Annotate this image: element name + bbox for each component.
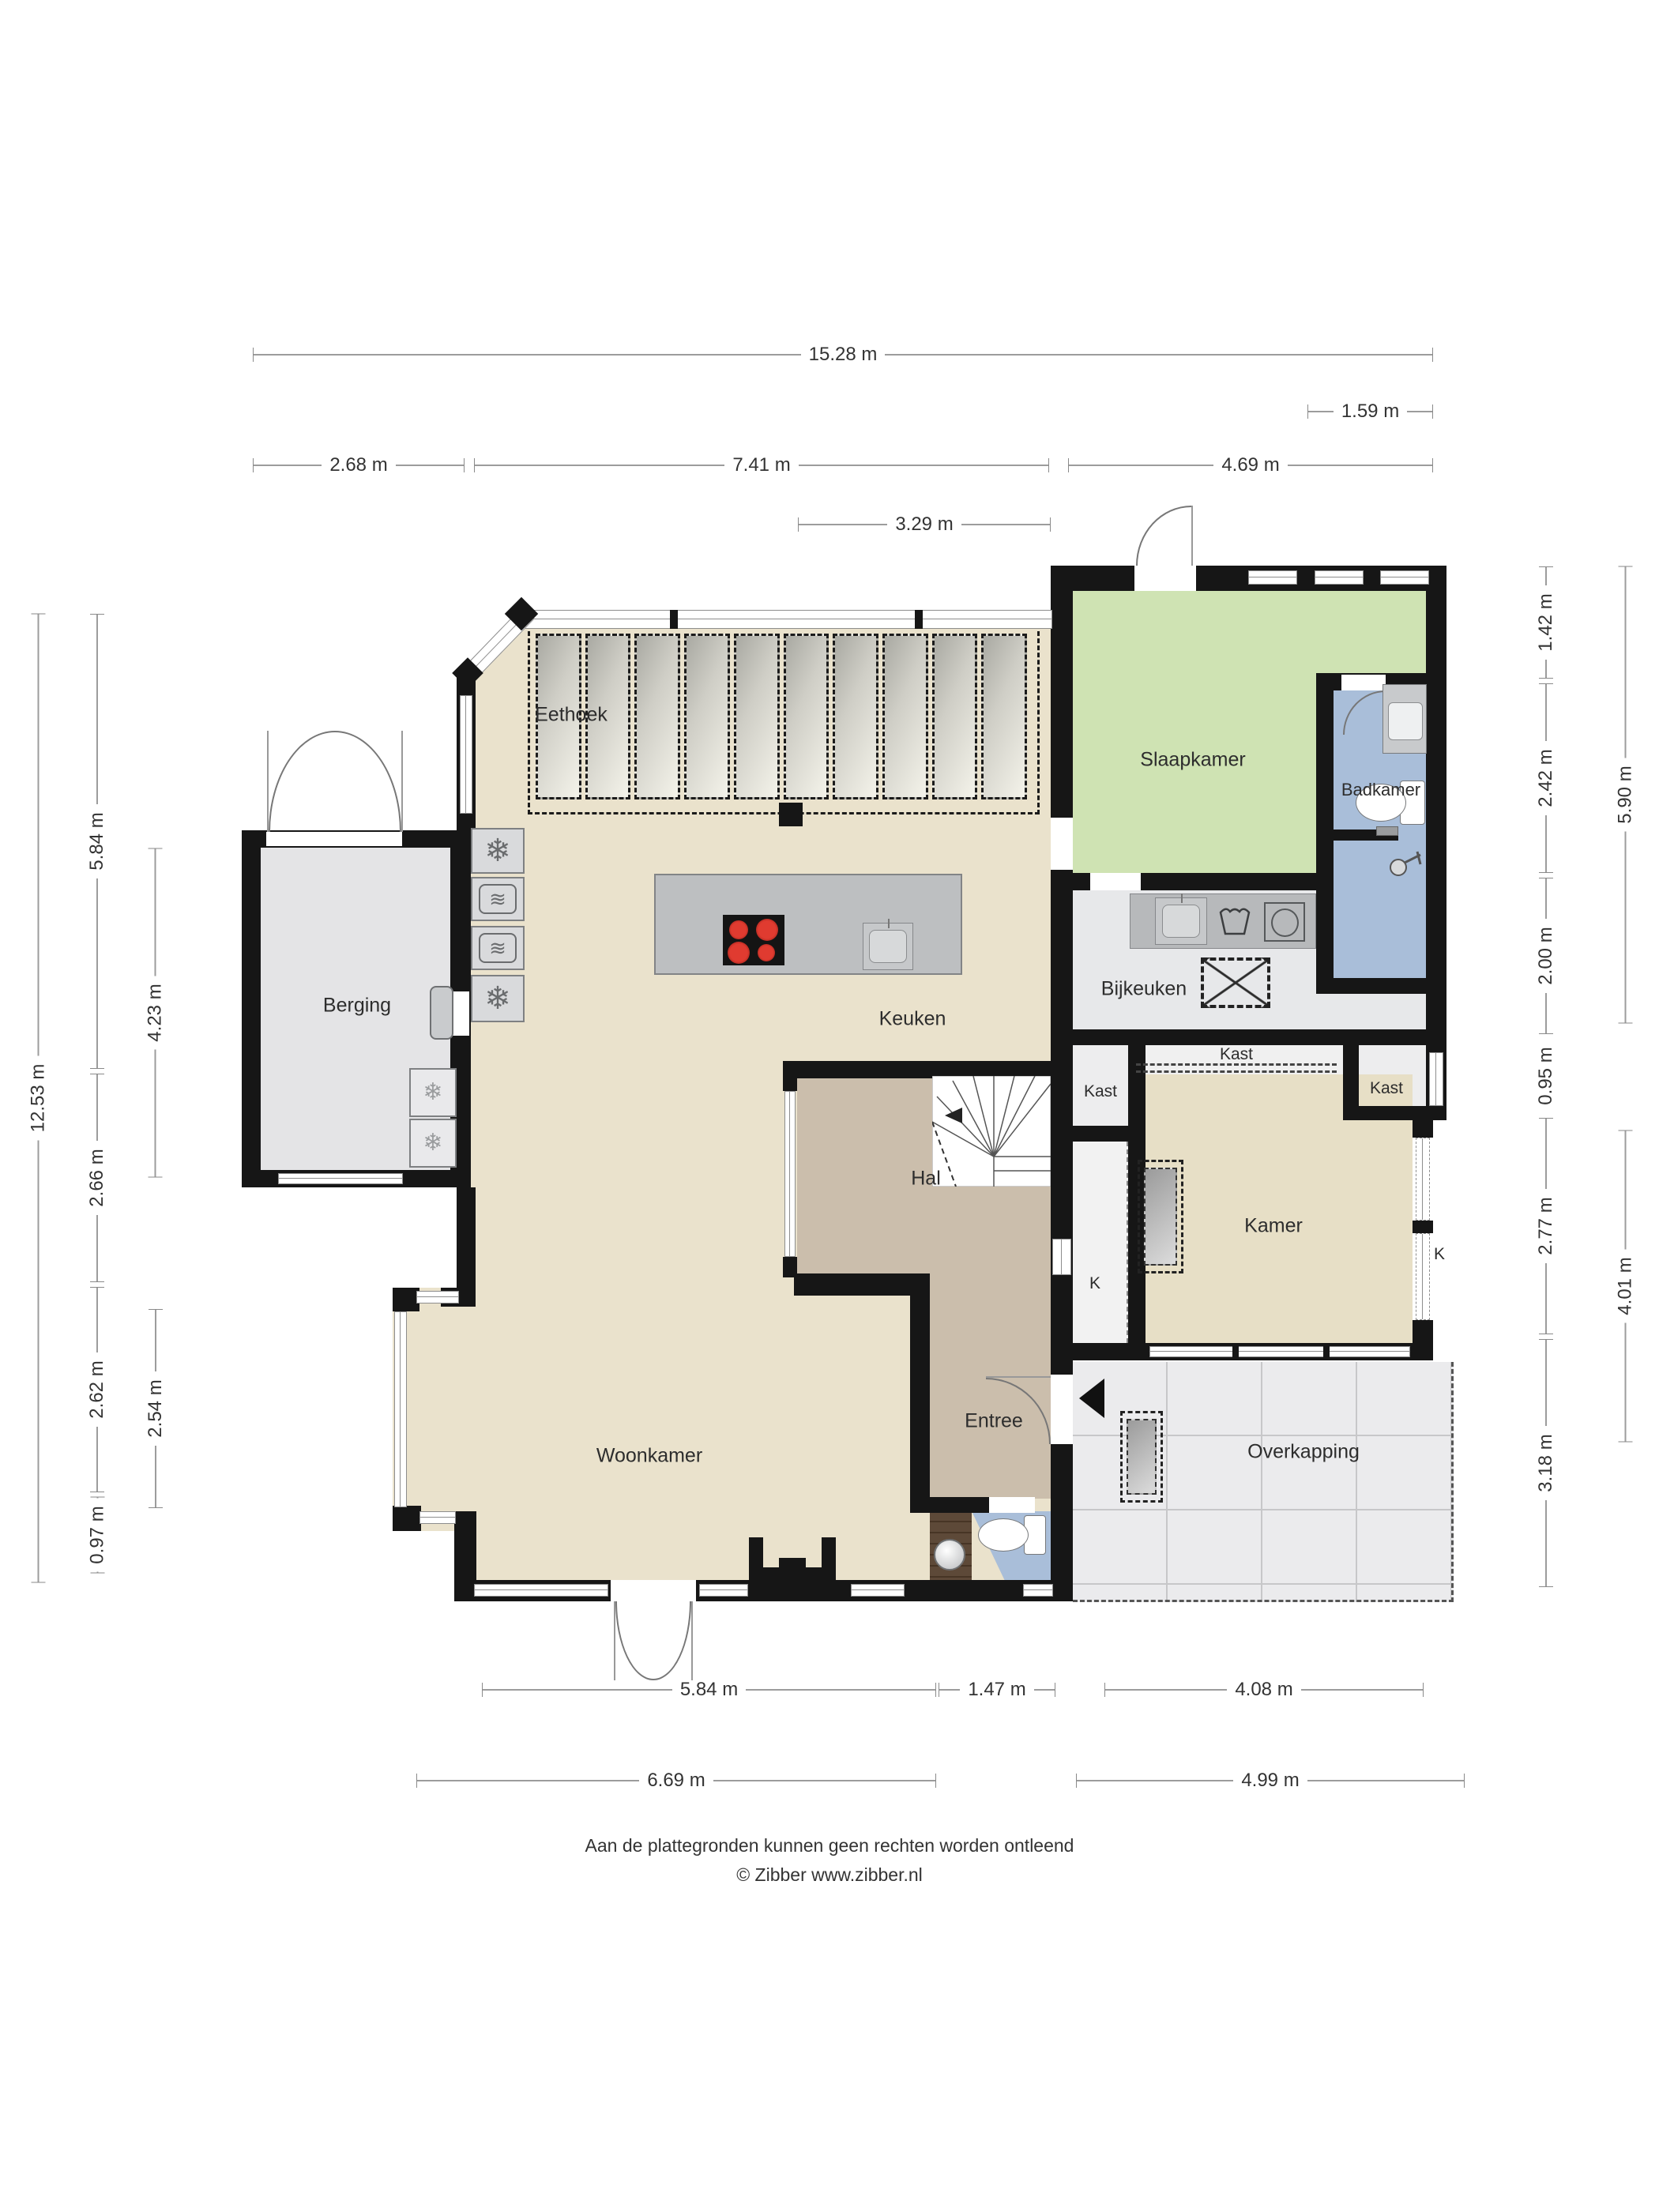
dim-label: 0.95 m (1537, 1039, 1556, 1112)
glass-roof-panel (684, 634, 730, 799)
dim-label: 2.66 m (88, 1141, 107, 1214)
window (851, 1584, 905, 1597)
shower-knob (1376, 826, 1398, 836)
glass-roof-panel (833, 634, 878, 799)
dim-label: 15.28 m (801, 345, 886, 364)
dim-label: 2.62 m (88, 1352, 107, 1426)
laundry-basket-icon (1217, 904, 1253, 939)
dim-label: 5.84 m (88, 804, 107, 878)
window (1149, 1346, 1410, 1357)
door-arc (615, 1601, 653, 1680)
door-opening (1090, 873, 1141, 890)
room-label-slaapkamer: Slaapkamer (1140, 749, 1245, 772)
snowflake-icon: ❄ (484, 835, 511, 867)
washing-machine-icon (1264, 902, 1305, 942)
wall (1323, 1343, 1330, 1360)
dim-right-wing-total: 5.90 m (1619, 566, 1633, 1024)
wall (783, 1061, 797, 1091)
door-arc (653, 1601, 691, 1680)
wall-badkamer-bottom (1316, 978, 1428, 994)
wall-bay-corner (393, 1288, 419, 1311)
door-opening (1341, 675, 1386, 690)
door-arc (335, 731, 401, 832)
dim-label: 2.00 m (1537, 919, 1556, 992)
window-dashed (1416, 1233, 1430, 1320)
room-label-kast-left: Kast (1084, 1082, 1117, 1101)
dim-top-keuken: 7.41 m (474, 458, 1049, 472)
attic-hatch (1201, 957, 1270, 1008)
wall-hal-bottom (794, 1273, 930, 1296)
window-dashed (1416, 1138, 1430, 1221)
dim-left-berging: 4.23 m (149, 848, 163, 1178)
dim-top-wing: 4.69 m (1068, 458, 1433, 472)
k-left-kast-floor (1073, 1142, 1128, 1343)
freezer-cell: ❄ (471, 828, 525, 874)
door-opening (1134, 566, 1196, 591)
wall (1073, 1343, 1128, 1360)
front-door-opening (1051, 1375, 1073, 1444)
freezer-box: ❄ (409, 1068, 457, 1117)
dim-right-1: 1.42 m (1539, 566, 1553, 679)
freezer-cell: ❄ (471, 975, 525, 1022)
dim-label: 2.54 m (146, 1371, 165, 1445)
wall (457, 1187, 476, 1303)
slaapkamer-floor (1073, 591, 1316, 873)
shower-icon (1387, 848, 1424, 882)
floorplan-canvas: 15.28 m 1.59 m 2.68 m 7.41 m 4.69 m 3.29… (0, 0, 1659, 2212)
glass-roof-panels (536, 634, 1027, 799)
dim-top-right-small: 1.59 m (1307, 404, 1433, 419)
dim-bottom-left-total: 6.69 m (416, 1774, 936, 1788)
wall-wing-right (1426, 566, 1446, 1120)
oven-icon: ≋ (479, 884, 517, 914)
door-arc (1136, 506, 1191, 566)
snowflake-icon: ❄ (423, 1131, 442, 1155)
room-label-kamer: Kamer (1244, 1215, 1303, 1238)
dim-label: 4.01 m (1616, 1249, 1635, 1322)
glass-roof-panel (882, 634, 928, 799)
footer-line1: Aan de plattegronden kunnen geen rechten… (585, 1831, 1074, 1860)
dim-right-4: 0.95 m (1539, 1039, 1553, 1113)
room-label-badkamer: Badkamer (1341, 780, 1420, 800)
dim-top-berging: 2.68 m (253, 458, 465, 472)
wall (454, 1511, 476, 1586)
door-opening (452, 991, 469, 1036)
dim-label: 2.68 m (322, 456, 395, 475)
dim-left-upper: 5.84 m (90, 614, 104, 1069)
opening (1051, 818, 1073, 870)
entrance-arrow-icon (1079, 1379, 1104, 1418)
hob-icon (723, 915, 784, 965)
dim-left-total: 12.53 m (32, 614, 46, 1583)
glass-roof-panel (734, 634, 780, 799)
room-label-keuken: Keuken (879, 1008, 946, 1031)
room-label-k-right: K (1434, 1245, 1445, 1264)
wall (1232, 1343, 1239, 1360)
fireplace-notch (779, 1558, 806, 1569)
dim-top-eethoek: 3.29 m (798, 517, 1051, 532)
door-leaf (267, 731, 269, 832)
wall-badkamer-left (1316, 673, 1334, 994)
slaapkamer-floor-strip (1316, 591, 1428, 673)
dim-bottom-overkapping: 4.08 m (1104, 1683, 1424, 1697)
sink-icon (863, 923, 913, 970)
wall-kast-right-bottom (1343, 1106, 1428, 1120)
window (1315, 570, 1364, 585)
door-leaf (691, 1601, 693, 1680)
dim-label: 5.90 m (1616, 758, 1635, 831)
freezer-box: ❄ (409, 1119, 457, 1168)
door-leaf (1191, 506, 1193, 567)
glass-roof-panel (634, 634, 680, 799)
room-label-kast-top: Kast (1220, 1045, 1253, 1064)
window (1380, 570, 1429, 585)
dim-bottom-woonkamer: 5.84 m (482, 1683, 936, 1697)
room-label-k-left: K (1089, 1274, 1100, 1293)
dim-label: 12.53 m (29, 1056, 48, 1141)
wall-bay-corner (393, 1506, 421, 1531)
window (474, 1584, 608, 1597)
dim-right-2: 2.42 m (1539, 683, 1553, 873)
window (460, 695, 472, 814)
window (278, 1173, 403, 1184)
room-label-kast-right: Kast (1370, 1079, 1403, 1098)
dim-label: 1.42 m (1537, 585, 1556, 659)
dim-left-lower: 2.62 m (90, 1287, 104, 1492)
sink-icon (1155, 897, 1207, 945)
wall-spine (1051, 566, 1073, 1601)
dim-right-lower-total: 4.01 m (1619, 1130, 1633, 1443)
radiator-dashed (1120, 1411, 1163, 1503)
door-arc (269, 731, 335, 832)
door-opening (611, 1580, 696, 1601)
room-label-bijkeuken: Bijkeuken (1101, 978, 1187, 1001)
glass-roof-panel (784, 634, 829, 799)
wall (1413, 1221, 1433, 1233)
snowflake-icon: ❄ (423, 1081, 442, 1104)
glass-roof-panel (932, 634, 978, 799)
dim-right-5: 2.77 m (1539, 1118, 1553, 1334)
kast-sliding-doors (1136, 1063, 1337, 1073)
dim-label: 3.29 m (887, 515, 961, 534)
footer-line2: © Zibber www.zibber.nl (585, 1860, 1074, 1890)
oven-cell: ≋ (471, 926, 525, 970)
dim-label: 1.59 m (1334, 402, 1407, 421)
window-bay (394, 1311, 407, 1507)
wall-entree-left (910, 1296, 930, 1501)
dim-label: 6.69 m (639, 1771, 713, 1790)
room-label-entree: Entree (965, 1410, 1023, 1433)
window (1248, 570, 1297, 585)
dim-label: 0.97 m (88, 1498, 107, 1571)
dim-top-total: 15.28 m (253, 348, 1433, 362)
window (416, 1291, 459, 1303)
dim-label: 2.42 m (1537, 741, 1556, 814)
dim-left-bottom: 0.97 m (91, 1497, 105, 1574)
dim-label: 5.84 m (672, 1680, 746, 1699)
dim-bottom-entree: 1.47 m (939, 1683, 1055, 1697)
dim-label: 4.08 m (1227, 1680, 1300, 1699)
column (779, 803, 803, 826)
bijkeuken-floor2 (1316, 994, 1428, 1029)
window (1429, 1052, 1443, 1106)
dim-label: 4.99 m (1233, 1771, 1307, 1790)
window (1023, 1584, 1053, 1597)
radiator-inner (1144, 1168, 1177, 1266)
room-label-woonkamer: Woonkamer (596, 1445, 702, 1468)
dim-label: 4.69 m (1213, 456, 1287, 475)
room-label-berging: Berging (323, 995, 391, 1018)
window (699, 1584, 748, 1597)
room-label-overkapping: Overkapping (1247, 1441, 1360, 1464)
wall-berging-left (242, 830, 261, 1187)
dim-right-6: 3.18 m (1539, 1339, 1553, 1587)
wall-kast-left-bottom (1073, 1126, 1145, 1142)
dim-left-mid: 2.66 m (90, 1074, 104, 1282)
washbasin (1382, 684, 1427, 754)
dim-right-3: 2.00 m (1539, 878, 1553, 1034)
snowflake-icon: ❄ (484, 983, 511, 1014)
wall-toilet-top (910, 1497, 989, 1513)
room-label-hal: Hal (911, 1168, 941, 1191)
berging-door-leaf (430, 986, 453, 1040)
wall (1413, 1120, 1433, 1138)
door-leaf (401, 731, 403, 832)
door-opening (989, 1497, 1035, 1513)
kitchen-island (654, 874, 962, 975)
footer-disclaimer: Aan de plattegronden kunnen geen rechten… (585, 1831, 1074, 1890)
washbasin-round (934, 1539, 965, 1571)
oven-cell: ≋ (471, 877, 525, 921)
radiator-inner (1127, 1419, 1157, 1495)
dim-label: 7.41 m (724, 456, 798, 475)
door-leaf (986, 1376, 1051, 1378)
window (419, 1511, 456, 1524)
dim-label: 1.47 m (960, 1680, 1033, 1699)
window (1052, 1239, 1071, 1275)
toilet-icon (978, 1515, 1048, 1553)
window-hal (784, 1091, 796, 1257)
dim-label: 4.23 m (146, 976, 165, 1049)
wall (670, 610, 678, 629)
dim-bottom-right-total: 4.99 m (1076, 1774, 1465, 1788)
dim-label: 3.18 m (1537, 1426, 1556, 1499)
radiator-dashed (1138, 1160, 1183, 1273)
staircase (932, 1076, 1051, 1187)
dim-label: 2.77 m (1537, 1189, 1556, 1262)
wall (915, 610, 923, 629)
glass-roof-panel (981, 634, 1027, 799)
door-opening (266, 832, 402, 846)
window (521, 610, 1052, 629)
oven-icon: ≋ (479, 933, 517, 963)
wall-kast-top (1073, 1029, 1428, 1045)
dim-left-bay: 2.54 m (149, 1309, 163, 1508)
room-label-eethoek: Eethoek (535, 704, 608, 727)
